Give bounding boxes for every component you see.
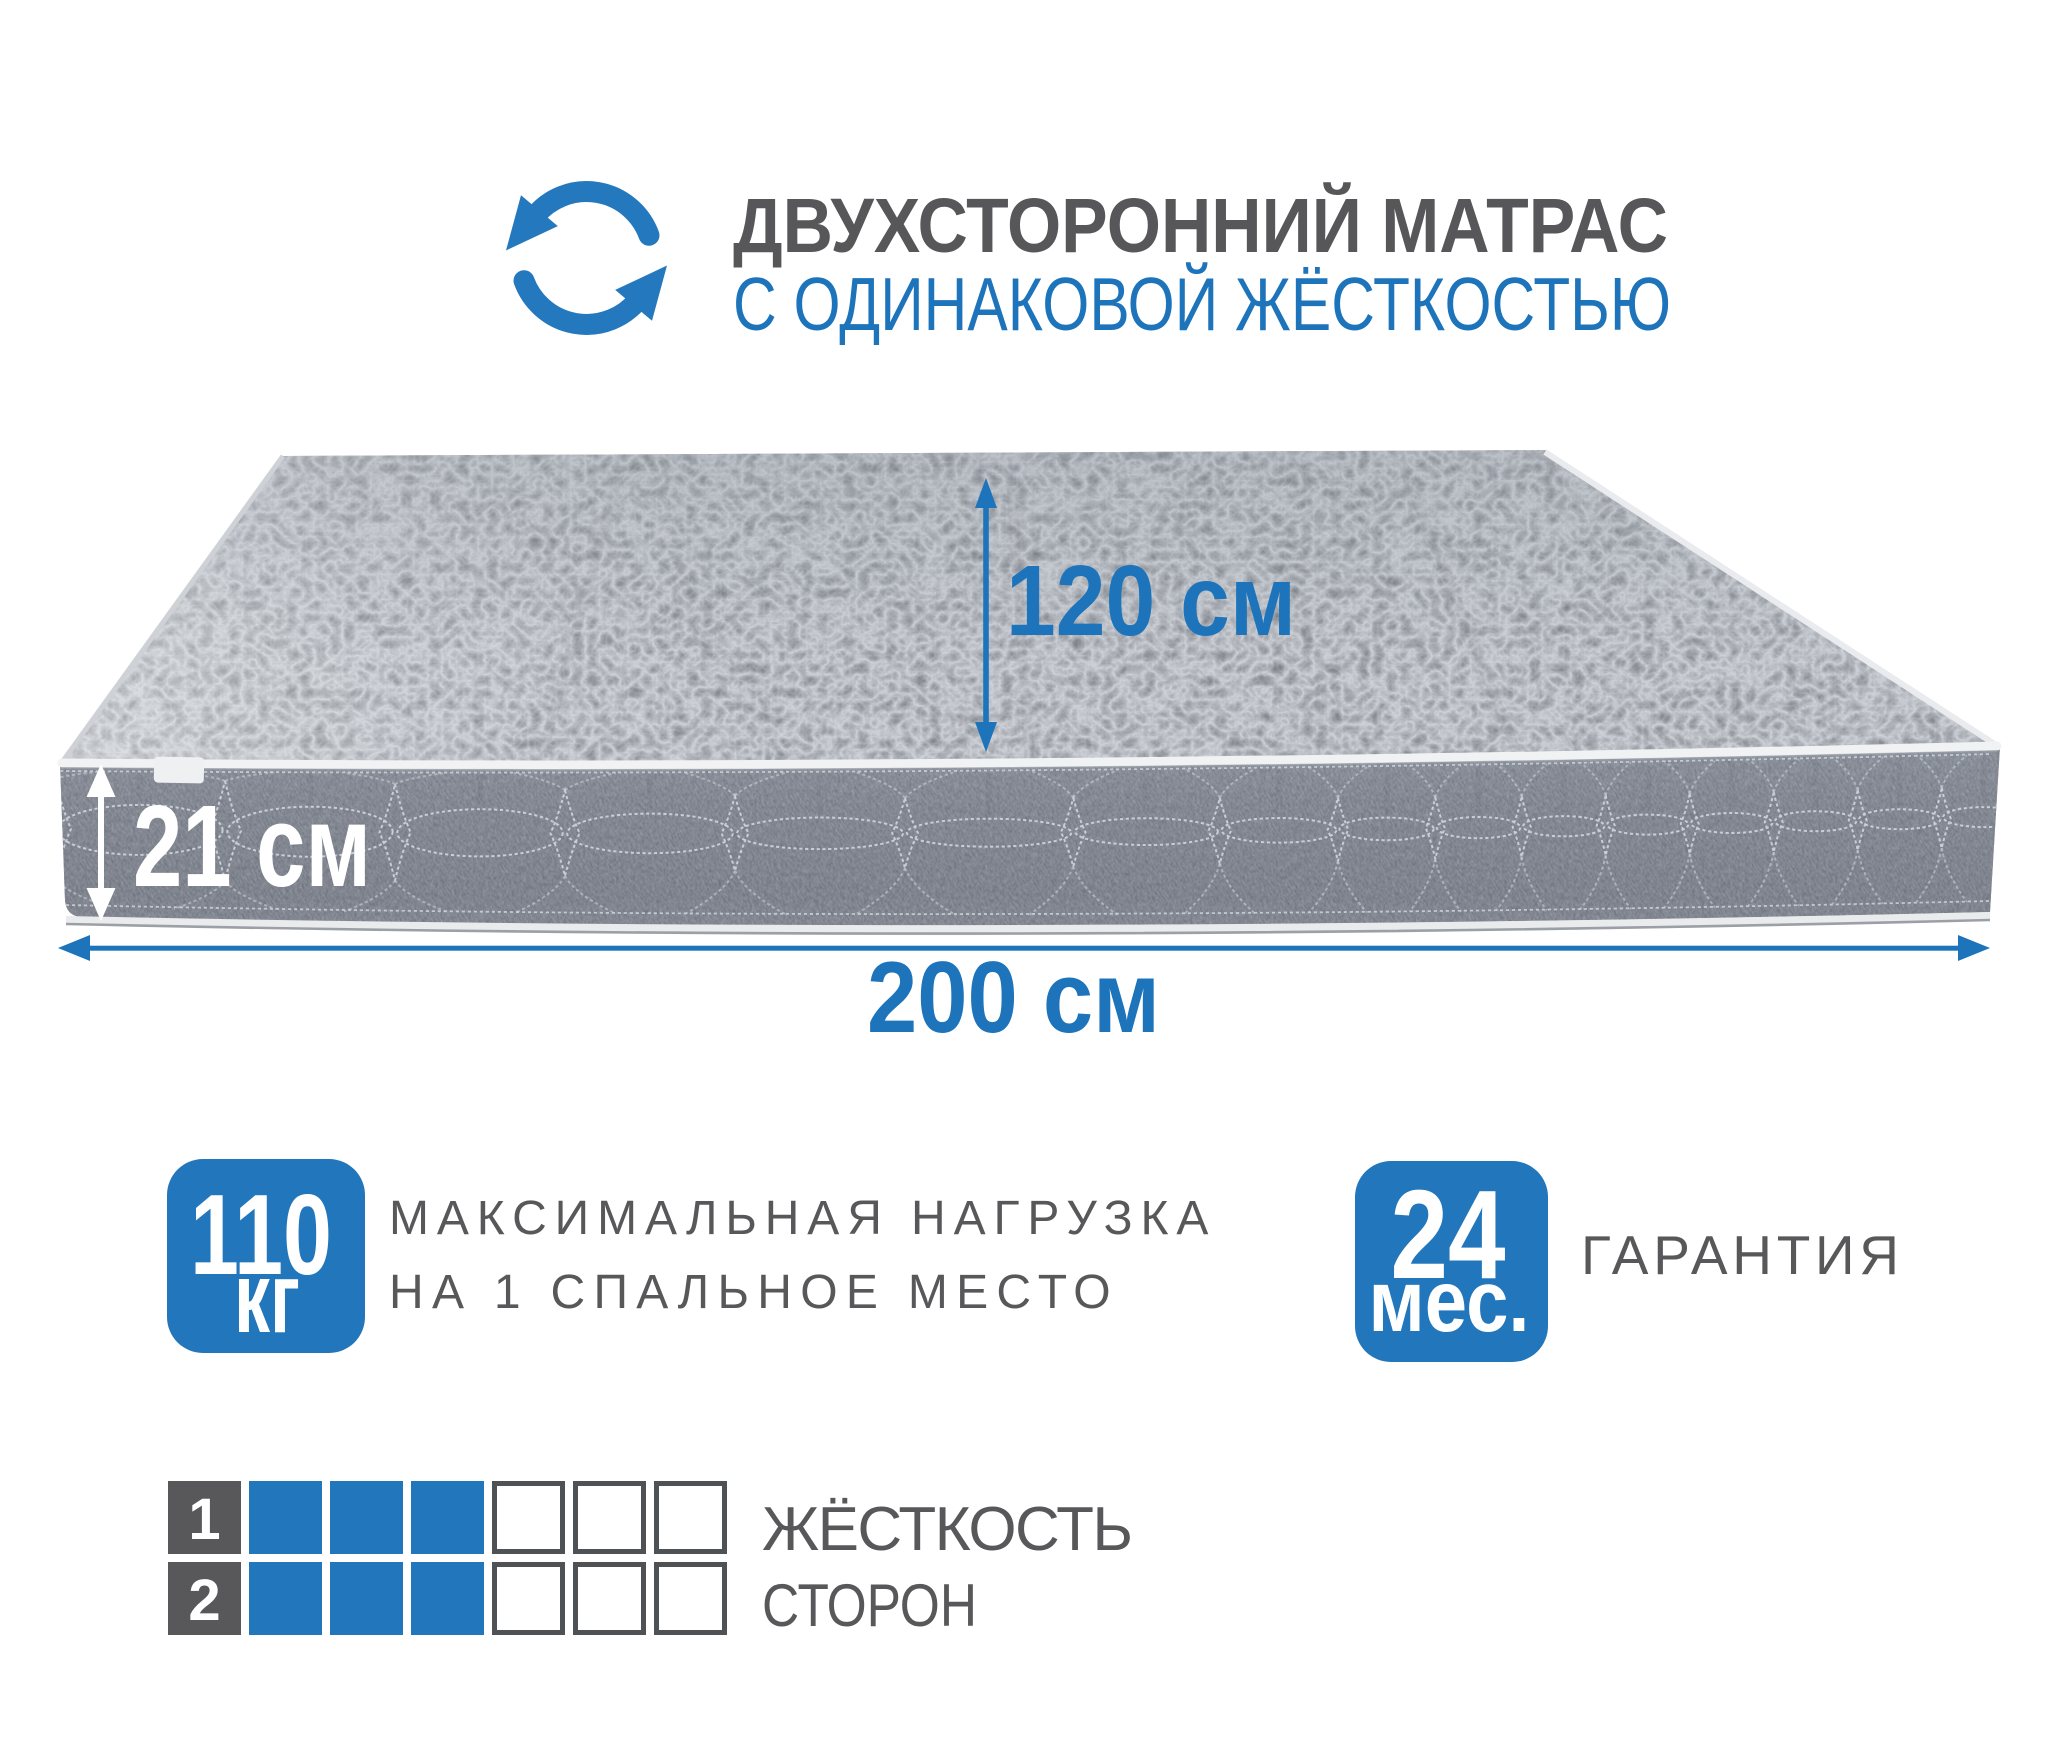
svg-text:ЖЁСТКОСТЬ: ЖЁСТКОСТЬ — [762, 1495, 1133, 1564]
svg-text:кг: кг — [234, 1242, 300, 1354]
svg-text:ГАРАНТИЯ: ГАРАНТИЯ — [1581, 1224, 1904, 1286]
svg-text:21 см: 21 см — [133, 781, 371, 911]
svg-text:200 см: 200 см — [867, 942, 1160, 1054]
svg-text:СТОРОН: СТОРОН — [762, 1572, 977, 1639]
svg-text:120 см: 120 см — [1006, 545, 1296, 657]
svg-text:С ОДИНАКОВОЙ ЖЁСТКОСТЬЮ: С ОДИНАКОВОЙ ЖЁСТКОСТЬЮ — [733, 262, 1671, 346]
svg-text:2: 2 — [188, 1568, 220, 1633]
svg-text:МАКСИМАЛЬНАЯ НАГРУЗКА: МАКСИМАЛЬНАЯ НАГРУЗКА — [389, 1192, 1216, 1245]
svg-text:1: 1 — [188, 1487, 220, 1552]
svg-text:мес.: мес. — [1369, 1253, 1530, 1350]
svg-text:ДВУХСТОРОННИЙ МАТРАС: ДВУХСТОРОННИЙ МАТРАС — [733, 181, 1668, 269]
svg-text:НА 1 СПАЛЬНОЕ МЕСТО: НА 1 СПАЛЬНОЕ МЕСТО — [389, 1266, 1119, 1319]
